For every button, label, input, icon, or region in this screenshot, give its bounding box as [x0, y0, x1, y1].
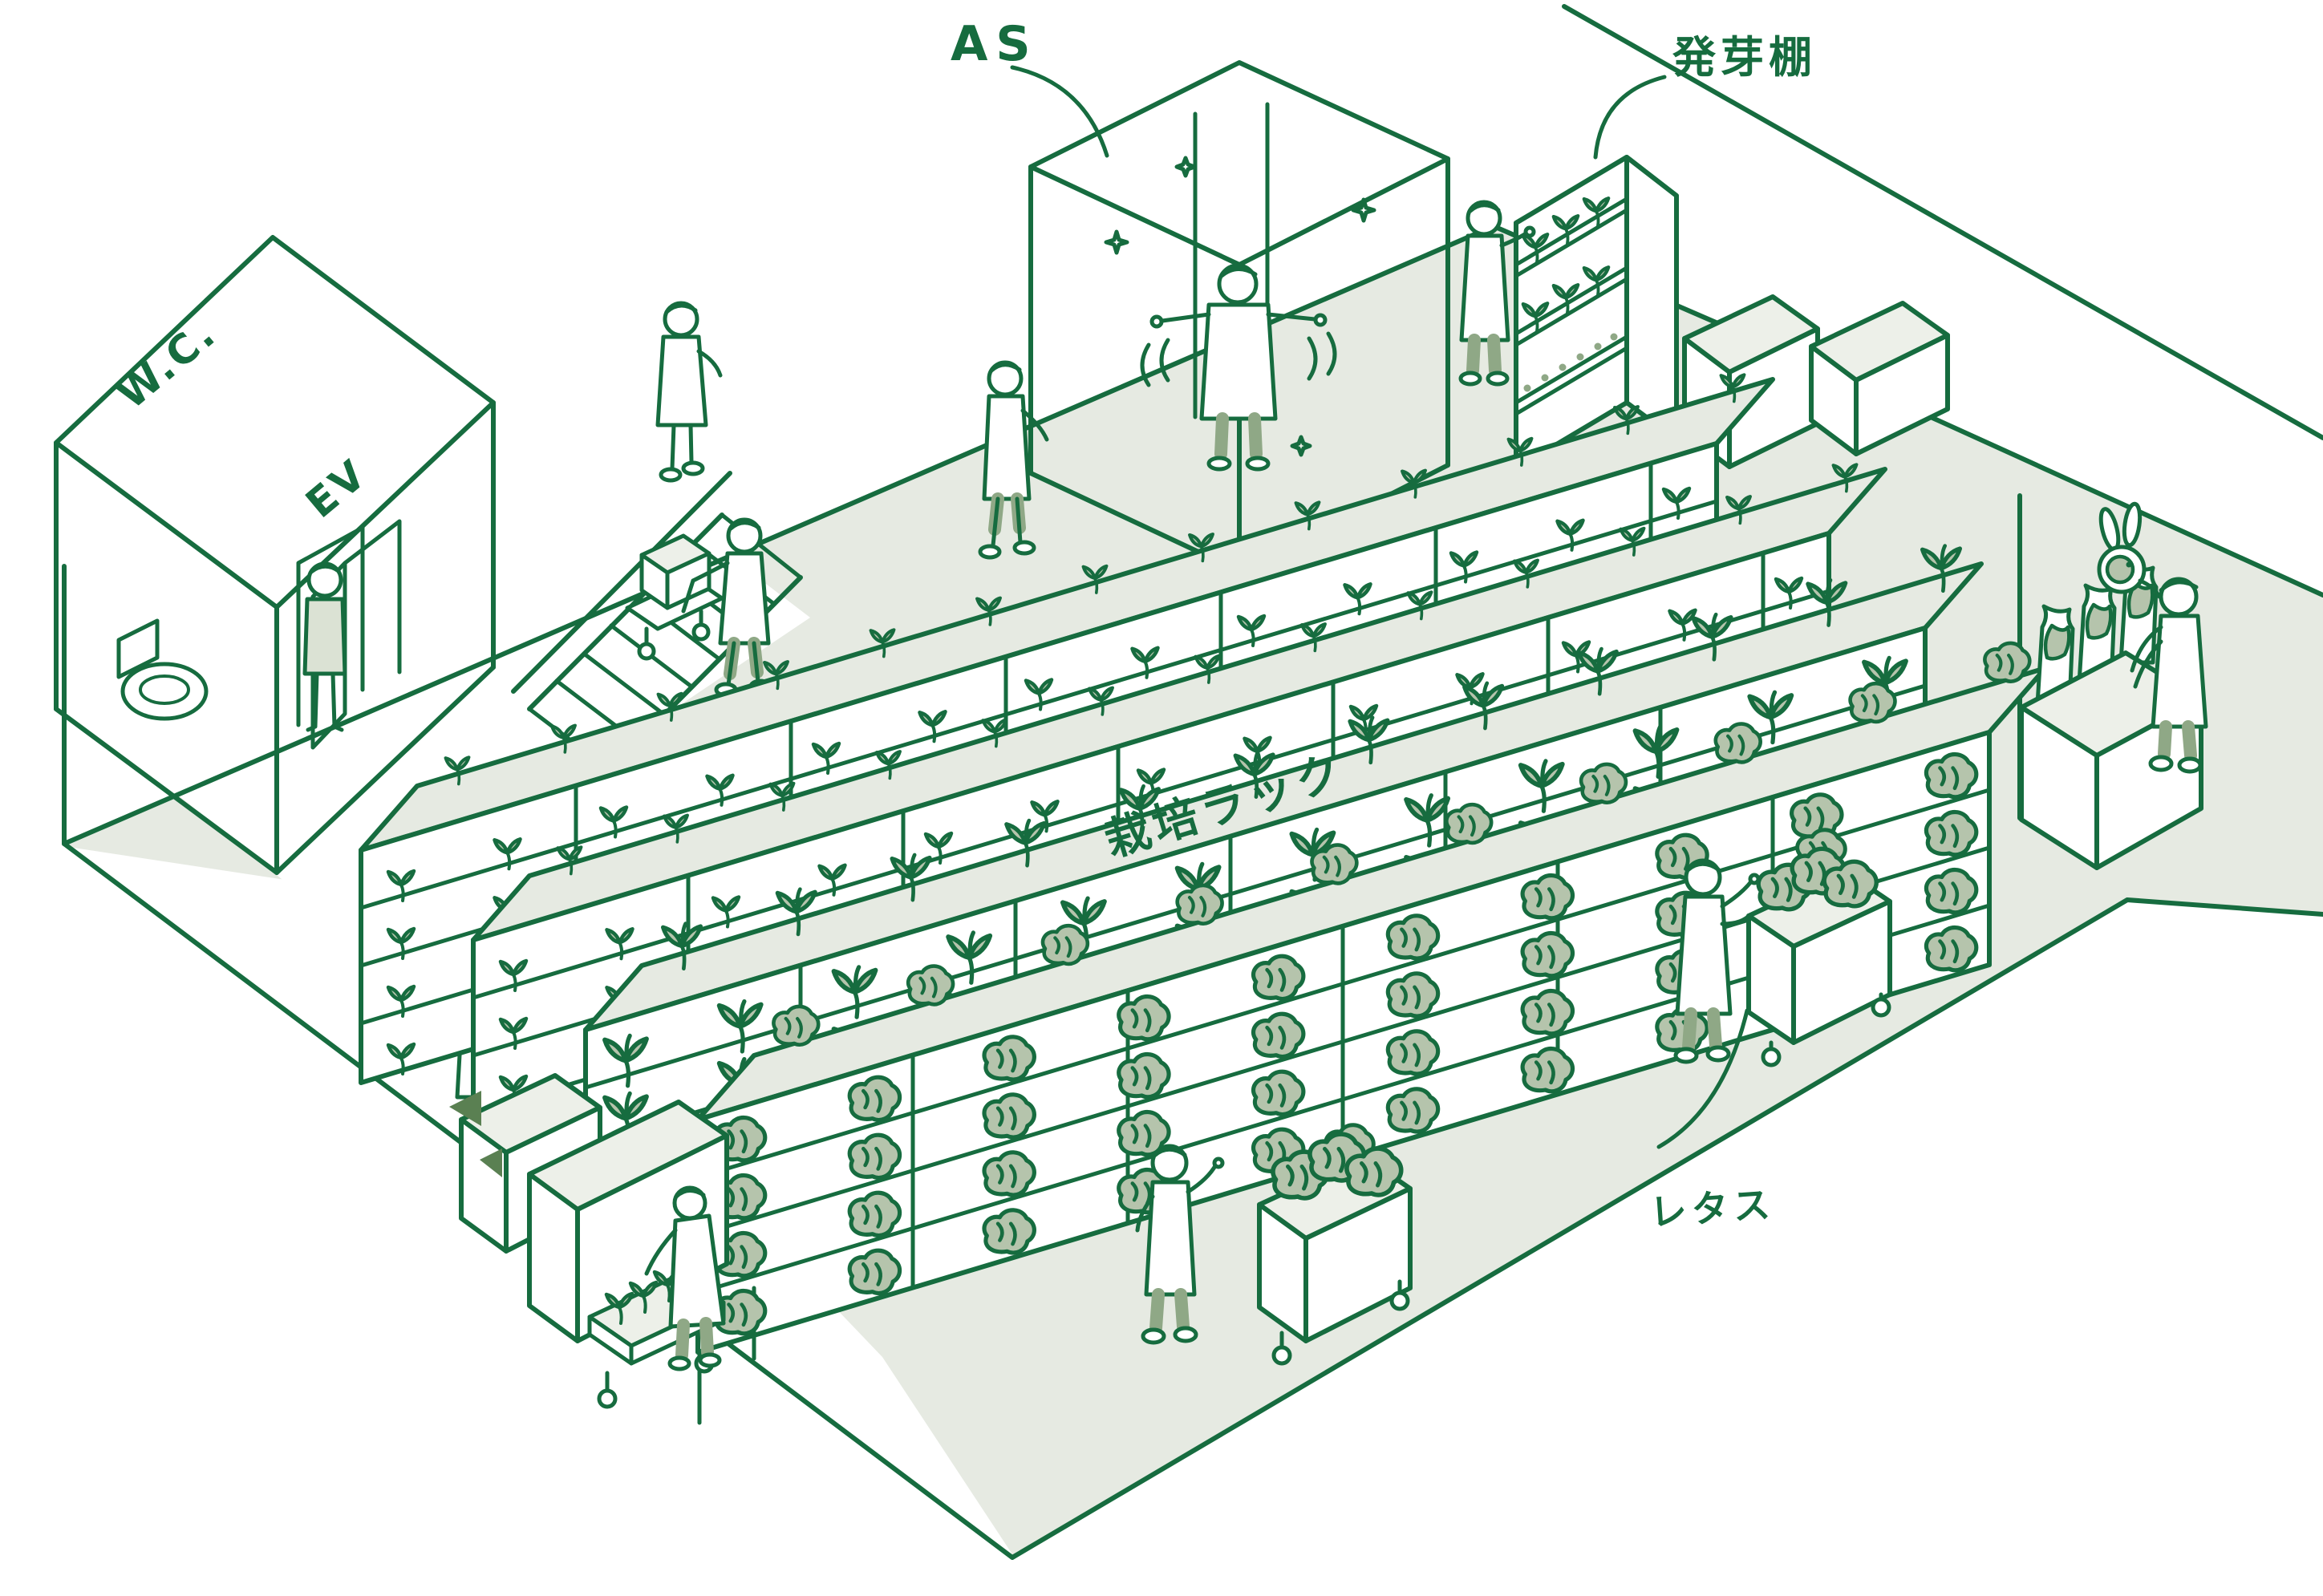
stairs-person [658, 303, 720, 480]
germination-shelf-leader-line [1595, 77, 1664, 157]
air-shower-leader-line [1012, 67, 1107, 156]
germination-shelf-label: 発芽棚 [1672, 32, 1817, 83]
lettuce-label: レタス [1648, 1182, 1776, 1234]
wc-label: W.C. [108, 310, 225, 419]
plant-factory-illustration: W.C. EV [0, 0, 2323, 1596]
plant-factory-svg: W.C. EV [0, 0, 2323, 1596]
air-shower-label: AS [951, 16, 1039, 72]
